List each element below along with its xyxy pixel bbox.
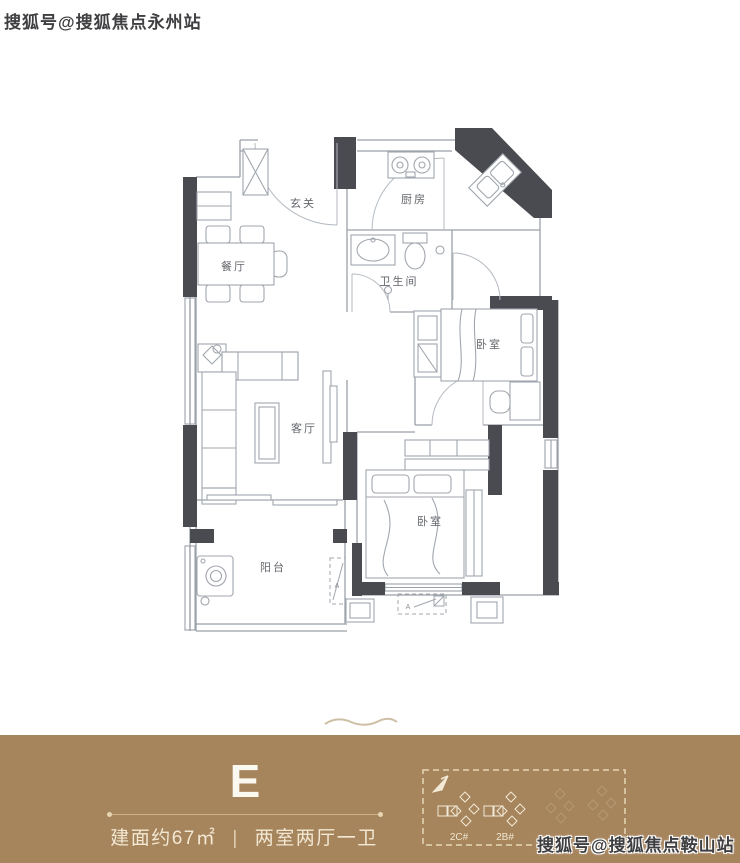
building-2c (438, 792, 479, 826)
washing-machine-icon (197, 556, 233, 605)
bed-bottom-icon (366, 470, 464, 578)
columns (346, 597, 503, 623)
building-faint-2 (588, 786, 616, 820)
entry-closet (243, 149, 268, 195)
room-label-living: 客厅 (291, 421, 317, 435)
coffee-table-icon (255, 403, 279, 463)
room-label-kitchen: 厨房 (401, 193, 427, 206)
building-faint-1 (546, 789, 574, 823)
page: { "watermarks": { "top_left": "搜狐号@搜狐焦点永… (0, 0, 740, 863)
building-2b (484, 792, 525, 826)
washbasin-icon (351, 235, 395, 265)
door-arcs (255, 143, 500, 425)
wardrobe-bottom-icon (405, 440, 489, 470)
room-label-bedroom-top: 卧室 (476, 337, 502, 351)
room-label-balcony: 阳台 (260, 560, 286, 574)
building-label-2b: 2B# (496, 832, 514, 843)
wardrobe-top-icon (414, 311, 441, 377)
watermark-top-left: 搜狐号@搜狐焦点永州站 (4, 8, 202, 33)
desk-icon (490, 382, 540, 420)
room-label-bathroom: 卫生间 (380, 274, 419, 288)
north-arrow-icon (433, 776, 448, 792)
dining-cabinet (197, 192, 231, 220)
room-label-dining: 餐厅 (221, 259, 247, 273)
ac-mark-label-2: A (406, 604, 411, 611)
floorplan: 玄关 厨房 餐厅 卫生间 卧室 客厅 卧室 阳台 A A (0, 0, 740, 735)
room-label-bedroom-bottom: 卧室 (417, 514, 443, 528)
decorative-wave (325, 719, 397, 725)
stove-icon (388, 152, 434, 178)
room-label-entry: 玄关 (290, 196, 316, 210)
sofa-icon (202, 352, 298, 504)
ac-mark-label-1: A (335, 583, 340, 590)
building-label-2c: 2C# (450, 832, 469, 843)
bedside-panel (466, 490, 482, 576)
tv-icon (323, 371, 337, 463)
watermark-bottom-right: 搜狐号@搜狐焦点鞍山站 (537, 831, 735, 856)
